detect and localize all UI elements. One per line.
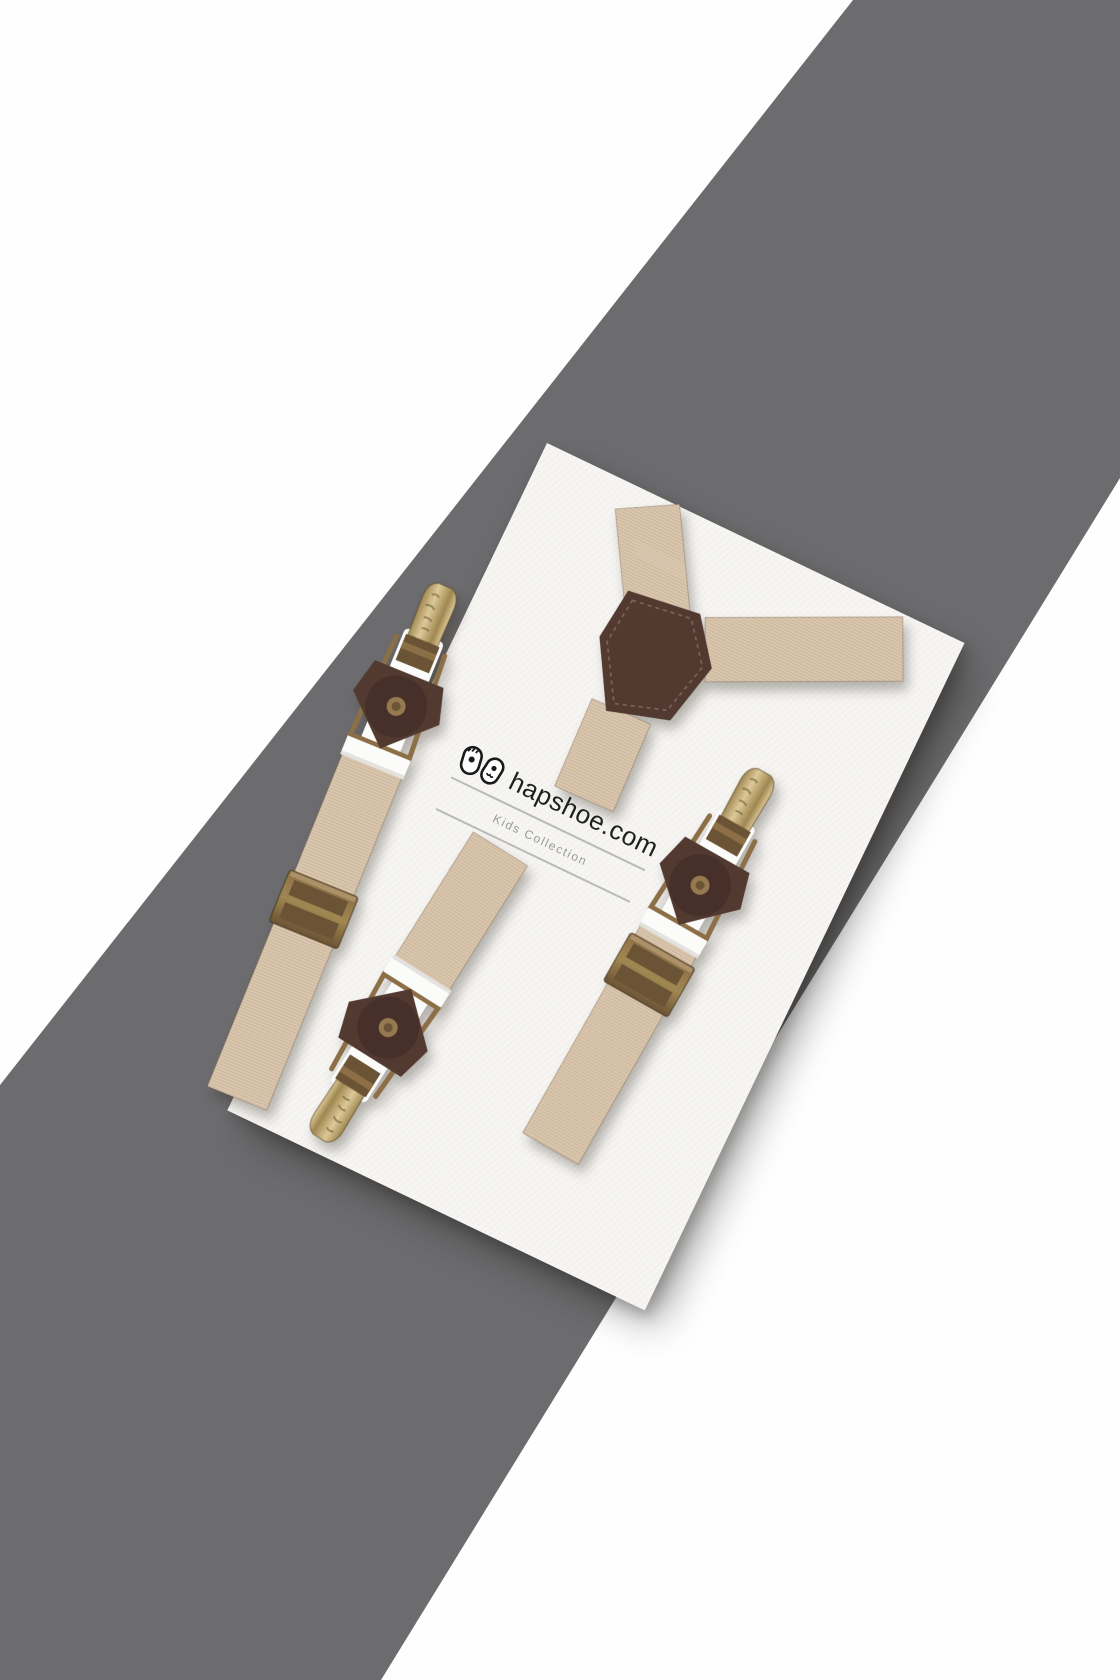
right-clip-assembly: [628, 749, 805, 964]
bottom-strap: [395, 832, 528, 991]
right-shoe-icon: [478, 755, 506, 786]
photo-stage: hapshoe.com Kids Collection: [0, 0, 1120, 1680]
product-card: hapshoe.com Kids Collection: [227, 443, 964, 1310]
